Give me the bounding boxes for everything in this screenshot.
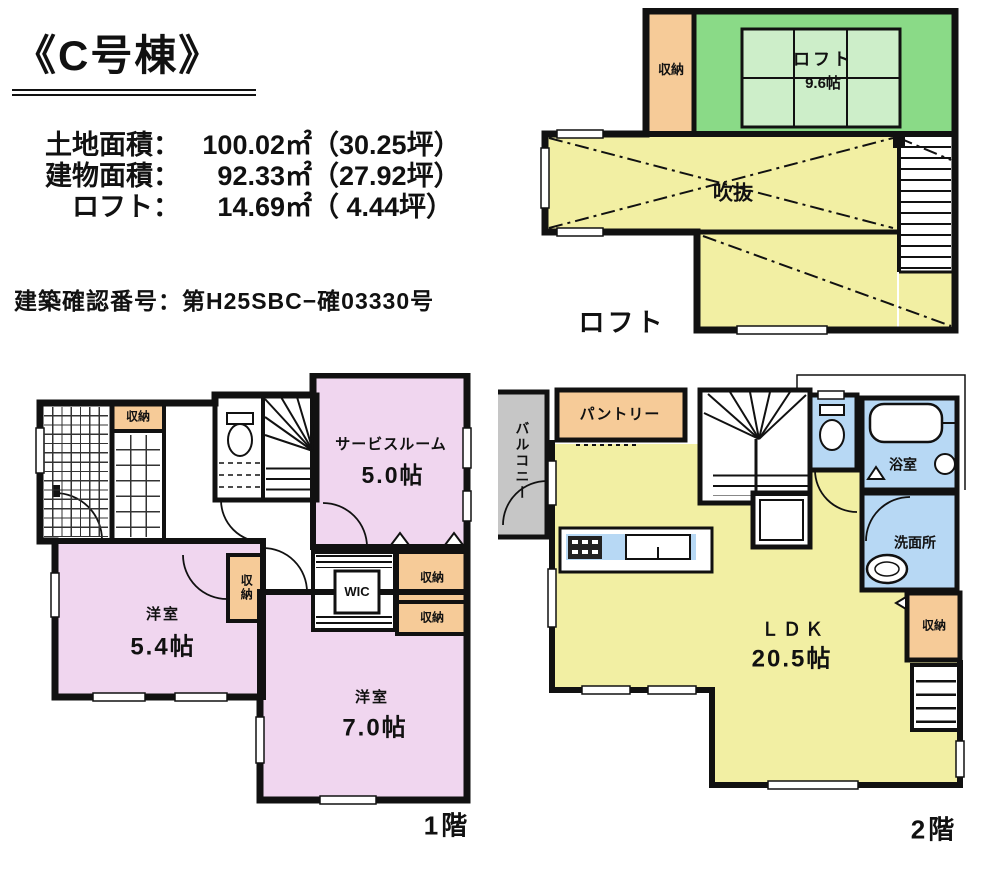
sink-icon	[867, 555, 907, 583]
loft-caption: ロフト	[578, 303, 665, 340]
south-room-size: 7.0帖	[342, 715, 407, 740]
area-tsubo: （30.25坪）	[312, 130, 502, 161]
wic-louver-top	[316, 555, 392, 568]
loft-room-label: ロフト	[793, 51, 853, 69]
closet-a-label: 収納	[420, 572, 444, 585]
west-room-size: 5.4帖	[130, 634, 195, 659]
loft-closet-label: 収納	[658, 63, 684, 77]
toilet-icon	[227, 413, 253, 456]
south-room-label: 洋室	[355, 690, 389, 706]
service-room-size: 5.0帖	[362, 463, 425, 487]
wic-louver-bottom	[316, 616, 392, 629]
void-label: 吹抜	[713, 184, 753, 205]
void-area-under-stairs	[899, 272, 952, 328]
area-label: ロフト：	[28, 192, 180, 223]
porch-tile-grid	[44, 407, 108, 537]
loft-stair-treads	[901, 137, 951, 270]
second-floor-plan: バルコニー パントリー 浴室 洗面所 収納 ＬＤＫ 20.5帖	[498, 373, 990, 805]
closet-2f-label: 収納	[922, 620, 946, 633]
bath-label: 浴室	[889, 458, 917, 473]
ldk-label: ＬＤＫ	[761, 621, 827, 640]
area-value: 100.02㎡	[180, 130, 312, 161]
pantry-label: パントリー	[580, 407, 661, 423]
floorplan-page: 《C号棟》 土地面積：100.02㎡（30.25坪） 建物面積：92.33㎡（2…	[0, 0, 1000, 875]
area-label: 土地面積：	[28, 130, 180, 161]
void-area-lower	[697, 232, 897, 328]
area-row-land: 土地面積：100.02㎡（30.25坪）	[28, 130, 502, 161]
washer-icon	[935, 454, 955, 474]
stove-icon	[568, 536, 602, 559]
washroom-label: 洗面所	[894, 536, 936, 551]
kitchen-counter	[560, 528, 712, 572]
balcony-label: バルコニー	[515, 421, 530, 501]
west-room-label: 洋室	[146, 607, 180, 623]
area-label: 建物面積：	[28, 161, 180, 192]
area-value: 14.69㎡	[180, 192, 312, 223]
closet-b-label: 収納	[420, 612, 444, 625]
building-confirmation-number: 建築確認番号：第H25SBC−確03330号	[14, 282, 434, 316]
ldk-size: 20.5帖	[752, 646, 833, 671]
entry-tile-grid	[116, 435, 160, 537]
first-floor-caption: 1階	[424, 806, 470, 843]
area-row-building: 建物面積：92.33㎡（27.92坪）	[28, 161, 502, 192]
service-room-label: サービスルーム	[335, 437, 447, 453]
loft-stair-treads-2f	[916, 669, 956, 726]
stair-treads	[266, 459, 315, 498]
second-floor-caption: 2階	[911, 810, 957, 847]
second-floor-drawing	[498, 373, 990, 805]
area-row-loft: ロフト：14.69㎡（ 4.44坪）	[28, 192, 502, 223]
area-tsubo: （ 4.44坪）	[312, 192, 502, 223]
stair-treads-2f	[713, 466, 808, 496]
area-tsubo: （27.92坪）	[312, 161, 502, 192]
wic-label: WIC	[344, 585, 369, 599]
toilet-icon-2f	[820, 405, 844, 450]
loft-plan-drawing	[537, 8, 962, 338]
area-value: 92.33㎡	[180, 161, 312, 192]
entry-closet-label: 収納	[126, 411, 150, 424]
loft-size-label: 9.6帖	[805, 76, 841, 92]
loft-plan: 収納 ロフト 9.6帖 吹抜	[537, 8, 962, 338]
center-closet-label: 収納	[240, 574, 253, 602]
area-table: 土地面積：100.02㎡（30.25坪） 建物面積：92.33㎡（27.92坪）…	[28, 130, 502, 223]
first-floor-plan: 収納 サービスルーム 5.0帖 洋室 5.4帖 収納 WIC 収納 収納 洋室 …	[35, 373, 477, 805]
page-title: 《C号棟》	[12, 22, 256, 96]
